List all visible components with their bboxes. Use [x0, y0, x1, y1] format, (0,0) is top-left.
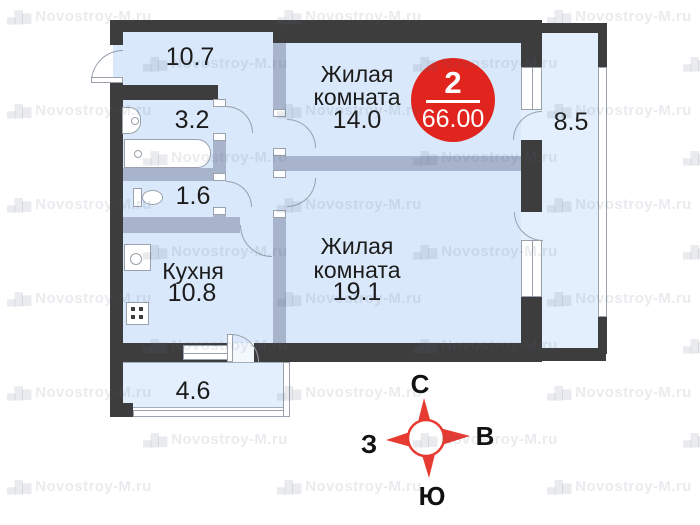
jamb	[213, 173, 226, 181]
buildings-icon: ▄█▆	[683, 339, 700, 353]
living2-balcony-window	[521, 240, 542, 297]
wall-balcony-corner-top	[598, 23, 607, 67]
watermark: ▄█▆Novostroy-M.ru	[547, 384, 692, 401]
rooms-count: 2	[444, 68, 461, 98]
watermark: ▄█▆Novostroy-M.ru	[683, 55, 700, 72]
total-area: 66.00	[422, 106, 485, 132]
jamb	[213, 133, 226, 141]
jamb	[213, 207, 226, 215]
compass-east-label: В	[461, 422, 509, 450]
wall-bottom-main	[110, 343, 542, 362]
buildings-icon: ▄█▆	[547, 10, 570, 24]
badge-divider	[426, 100, 480, 103]
wall-hallway-living1	[273, 31, 286, 117]
living1-balcony-window	[521, 67, 542, 110]
watermark: ▄█▆Novostroy-M.ru	[683, 243, 700, 260]
buildings-icon: ▄█▆	[683, 151, 700, 165]
watermark: ▄█▆Novostroy-M.ru	[683, 431, 700, 448]
wall-bottom-balcony	[542, 348, 606, 361]
kitchen-sink	[124, 244, 151, 271]
living1-label-line1: Жилая	[321, 62, 394, 86]
apartment-summary-badge: 2 66.00	[411, 58, 495, 142]
watermark: ▄█▆Novostroy-M.ru	[683, 337, 700, 354]
buildings-icon: ▄█▆	[7, 104, 30, 118]
buildings-icon: ▄█▆	[683, 245, 700, 259]
balcony-bottom-glazing	[133, 410, 290, 417]
buildings-icon: ▄█▆	[683, 433, 700, 447]
watermark: ▄█▆Novostroy-M.ru	[7, 478, 152, 495]
buildings-icon: ▄█▆	[683, 57, 700, 71]
sink-drain	[131, 117, 139, 125]
jamb	[273, 170, 286, 178]
watermark: ▄█▆Novostroy-M.ru	[143, 431, 288, 448]
wall-kitchen-living2	[273, 210, 286, 343]
floor-plan-canvas: 10.7 3.2 1.6 Кухня 10.8 Жилая комната 14…	[0, 0, 700, 525]
bathtub	[124, 139, 211, 168]
toilet-bowl	[142, 190, 163, 205]
kitchen-window	[183, 345, 230, 360]
kitchen-area: 10.8	[168, 281, 217, 305]
balcony-bottom-glazing-right	[283, 362, 290, 417]
compass-north-label: С	[396, 370, 444, 398]
buildings-icon: ▄█▆	[7, 10, 30, 24]
watermark-text: Novostroy-M.ru	[171, 431, 287, 448]
buildings-icon: ▄█▆	[547, 386, 570, 400]
wall-left-foot	[110, 403, 133, 417]
buildings-icon: ▄█▆	[7, 292, 30, 306]
kitchen-balcony-door-leaf	[227, 334, 233, 362]
entrance-door-leaf	[91, 77, 123, 83]
bathtub-drain	[134, 150, 142, 158]
jamb	[213, 99, 226, 107]
balcony-bottom-area: 4.6	[176, 379, 211, 403]
watermark: ▄█▆Novostroy-M.ru	[547, 478, 692, 495]
hallway-area: 10.7	[166, 45, 215, 69]
wall-top-hallway	[110, 20, 273, 32]
jamb	[273, 210, 286, 218]
wall-left-upper	[110, 20, 123, 45]
buildings-icon: ▄█▆	[7, 386, 30, 400]
watermark: ▄█▆Novostroy-M.ru	[683, 149, 700, 166]
buildings-icon: ▄█▆	[7, 198, 30, 212]
kitchen-sink-drain	[130, 253, 142, 265]
toilet-area: 1.6	[176, 184, 211, 208]
wall-right-seg2	[521, 140, 542, 212]
wall-top-living1	[273, 20, 542, 43]
jamb	[273, 148, 286, 156]
wall-living1-living2	[279, 156, 522, 171]
wall-top-balcony	[542, 23, 606, 33]
balcony-side-glazing	[598, 67, 607, 317]
living2-label-line1: Жилая	[321, 234, 394, 258]
compass-west-label: З	[345, 430, 393, 458]
watermark-text: Novostroy-M.ru	[35, 478, 151, 495]
wall-hallway-bathroom	[110, 85, 218, 100]
wall-corridor-kitchen	[123, 217, 240, 233]
bathroom-area: 3.2	[175, 108, 210, 132]
stove	[126, 302, 149, 325]
buildings-icon: ▄█▆	[143, 433, 166, 447]
wall-right-seg1	[521, 23, 542, 67]
wall-balcony-corner-bottom	[598, 317, 607, 354]
toilet-tank	[133, 188, 142, 207]
living1-area: 14.0	[333, 108, 382, 132]
buildings-icon: ▄█▆	[7, 480, 30, 494]
jamb	[273, 109, 286, 117]
buildings-icon: ▄█▆	[277, 480, 300, 494]
balcony-side-area: 8.5	[554, 110, 589, 134]
compass-south-label: Ю	[408, 482, 456, 510]
watermark-text: Novostroy-M.ru	[575, 384, 691, 401]
buildings-icon: ▄█▆	[547, 480, 570, 494]
watermark-text: Novostroy-M.ru	[575, 478, 691, 495]
stove-burners	[131, 307, 135, 311]
wall-bath-toilet	[123, 168, 213, 181]
living2-area: 19.1	[333, 280, 382, 304]
